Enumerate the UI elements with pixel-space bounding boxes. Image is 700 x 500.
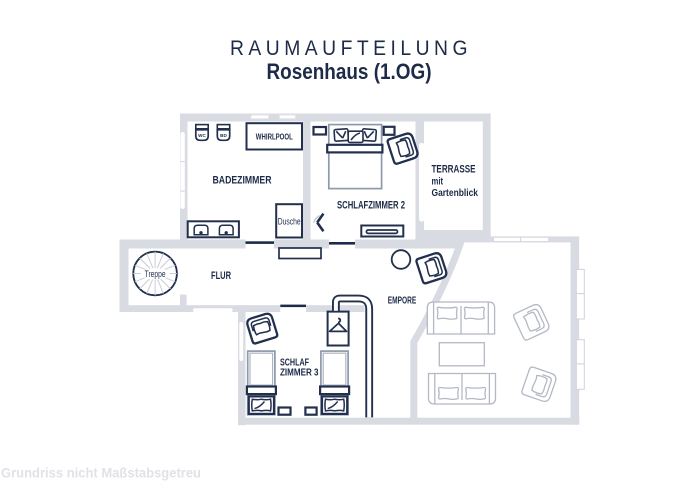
svg-text:Treppe: Treppe [145,269,166,279]
svg-text:WC: WC [198,133,206,138]
svg-text:BADEZIMMER: BADEZIMMER [213,175,272,187]
svg-text:mit: mit [432,175,444,187]
svg-text:Gartenblick: Gartenblick [432,187,479,199]
svg-text:Rosenhaus (1.OG): Rosenhaus (1.OG) [267,59,432,84]
svg-text:ZIMMER 3: ZIMMER 3 [280,367,319,378]
svg-text:FLUR: FLUR [211,270,231,282]
svg-text:Grundriss nicht Maßstabsgetreu: Grundriss nicht Maßstabsgetreu [1,466,201,481]
svg-text:SCHLAFZIMMER 2: SCHLAFZIMMER 2 [337,200,405,212]
svg-text:RAUMAUFTEILUNG: RAUMAUFTEILUNG [230,36,472,60]
svg-text:Dusche: Dusche [278,216,301,227]
svg-text:TERRASSE: TERRASSE [432,164,476,176]
svg-text:EMPORE: EMPORE [388,295,417,306]
svg-text:BD: BD [220,133,227,138]
svg-text:WHIRLPOOL: WHIRLPOOL [256,132,293,141]
